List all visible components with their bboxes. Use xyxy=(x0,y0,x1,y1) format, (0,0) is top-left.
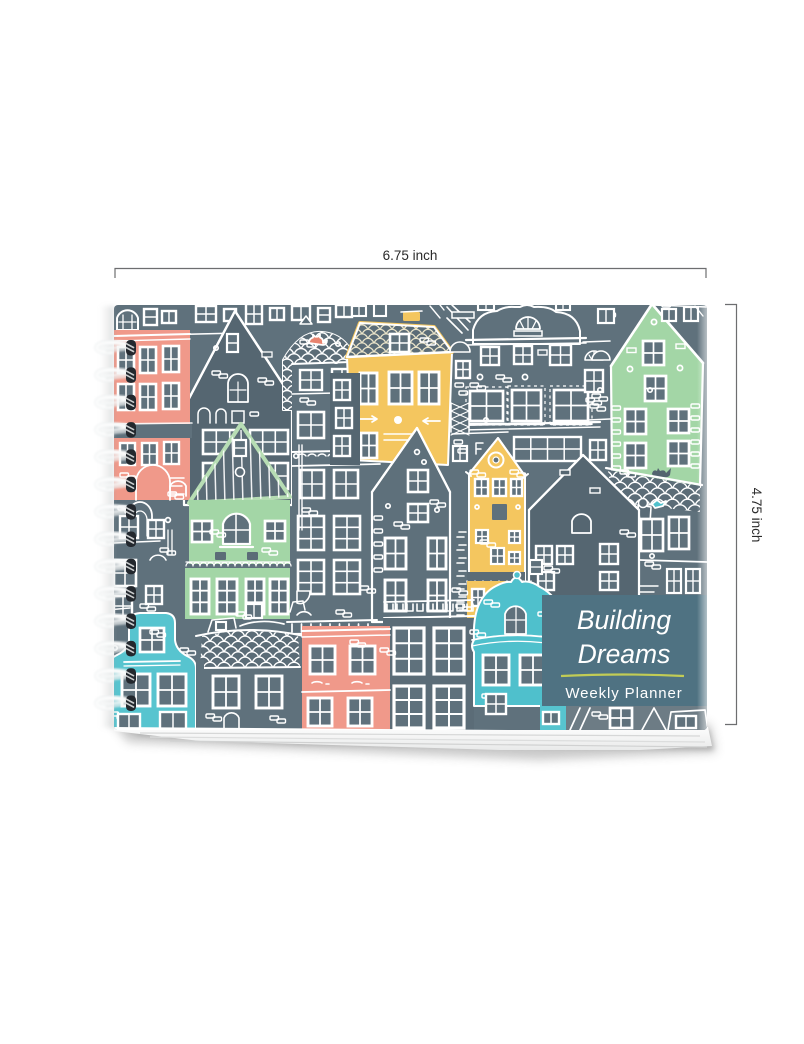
svg-text:6.75 inch: 6.75 inch xyxy=(383,248,438,263)
svg-text:4.75 inch: 4.75 inch xyxy=(749,488,764,543)
svg-text:Weekly Planner: Weekly Planner xyxy=(565,685,682,702)
svg-text:Dreams: Dreams xyxy=(578,639,671,669)
svg-text:Building: Building xyxy=(577,605,672,635)
